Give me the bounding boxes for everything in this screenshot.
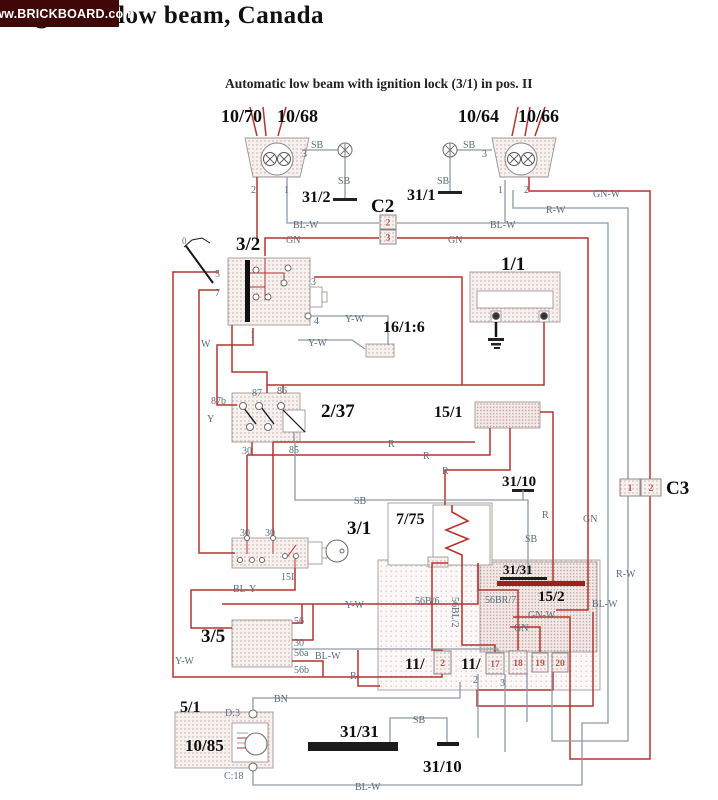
wire-label: 3: [482, 149, 487, 160]
wire-label: R-W: [616, 569, 636, 580]
connector-pin-number: 2: [386, 219, 391, 229]
wire-label: BN: [274, 694, 288, 705]
fusebox-15-2: [480, 562, 597, 652]
wire-label: GN: [448, 235, 462, 246]
component-label: 11/: [461, 656, 481, 673]
wire-label: Y-W: [308, 338, 327, 349]
wire-label: 30: [242, 446, 252, 457]
wire-label: GN: [514, 623, 528, 634]
connector-pin-number: 3: [386, 234, 391, 244]
component-label: 1/1: [501, 254, 525, 275]
component-label: 10/85: [185, 736, 224, 755]
wire-label: R: [388, 439, 395, 450]
wire-label: SB: [525, 534, 538, 545]
wire-label: 56a: [294, 648, 309, 659]
ground-bar: [491, 343, 501, 346]
tab-3-2-pin: [322, 292, 327, 302]
component-label: 10/70: [221, 106, 262, 126]
component-label: 10/66: [518, 106, 559, 126]
terminal-dot: [249, 763, 257, 771]
wire: [265, 238, 379, 256]
wire-label: 56BL/2: [449, 597, 460, 628]
wire-label: R: [542, 510, 549, 521]
wire-label: 15I: [281, 572, 294, 583]
wire-label: W: [201, 339, 211, 350]
ground-bar: [245, 260, 250, 322]
wire: [191, 568, 295, 628]
wire-label: R: [350, 671, 357, 682]
wire-label: 7: [215, 288, 220, 299]
wire-label: 85: [289, 445, 299, 456]
wire-label: GN-W: [528, 610, 556, 621]
component-label: 31/10: [423, 757, 462, 776]
wire: [263, 107, 266, 136]
component-label: 31/10: [502, 474, 536, 490]
ignition-3-1: [232, 538, 308, 568]
ground-bar: [488, 338, 504, 341]
wire-label: SB: [437, 176, 450, 187]
component-label: 3/2: [236, 234, 260, 255]
wire-label: Y-W: [345, 600, 364, 611]
wiring-diagram: 231221718192010/7010/6810/6410/6631/231/…: [0, 0, 718, 800]
component-label: C2: [371, 196, 394, 217]
terminal-dot: [541, 313, 548, 320]
component-label: 5/1: [180, 699, 200, 716]
wire-label: 56BR/7: [485, 595, 516, 606]
wire-label: 56b: [294, 665, 309, 676]
terminal-dot: [285, 265, 291, 271]
wire-label: 56: [294, 616, 304, 627]
connector-pin-number: 2: [649, 484, 654, 494]
terminal-dot: [249, 710, 257, 718]
component-label: 31/2: [302, 189, 330, 206]
wire-label: BL-W: [315, 651, 341, 662]
wire-label: R: [423, 451, 430, 462]
terminal-dot: [283, 554, 288, 559]
terminal-dot: [250, 558, 255, 563]
switch-3-2: [228, 258, 310, 325]
wire-label: BL-W: [490, 220, 516, 231]
wire-label: 86: [277, 386, 287, 397]
wire-label: GN: [583, 514, 597, 525]
wiring-diagram-page: High and low beam, Canada www.BRICKBOARD…: [0, 0, 718, 800]
component-label: 11/: [405, 656, 425, 673]
dimmer-3-5: [232, 620, 292, 667]
wire-label: SB: [413, 715, 426, 726]
wire-label: SB: [354, 496, 367, 507]
wire-label: 87: [252, 388, 262, 399]
terminal-dot: [240, 403, 247, 410]
battery-slot: [477, 291, 553, 308]
component-label: 2/37: [321, 401, 355, 422]
wire-label: R-W: [546, 205, 566, 216]
ground-bar: [497, 581, 585, 586]
terminal-dot: [247, 424, 254, 431]
wire: [199, 290, 235, 553]
component-label: 10/64: [458, 106, 499, 126]
component-label: C3: [666, 478, 689, 499]
component-label: 7/75: [396, 511, 424, 528]
wire-label: 30: [240, 528, 250, 539]
wire-label: 0: [182, 236, 187, 246]
terminal-dot: [294, 554, 299, 559]
wire-label: BL-Y: [233, 584, 256, 595]
connector-pin-number: 2: [440, 659, 445, 669]
terminal-dot: [340, 549, 344, 553]
wire-label: 1: [498, 185, 503, 196]
wire-label: Y-W: [175, 656, 194, 667]
wire-label: D:3: [225, 708, 240, 719]
connector-pin-number: 18: [513, 659, 523, 669]
wire-label: 2: [473, 675, 478, 686]
wire-label: Y-W: [345, 314, 364, 325]
component-label: 31/31: [503, 562, 533, 577]
wire-label: 1: [250, 330, 255, 341]
wire-label: 1: [284, 185, 289, 196]
wire-label: BL-W: [293, 220, 319, 231]
wiring-diagram-svg: 231221718192010/7010/6810/6410/6631/231/…: [0, 0, 718, 800]
wire-label: 3: [500, 678, 505, 689]
terminal-dot: [253, 294, 259, 300]
tab-3-1: [308, 542, 322, 564]
terminal-dot: [260, 558, 265, 563]
wire-label: SB: [463, 140, 476, 151]
wire-label: 2: [251, 185, 256, 196]
ground-bar: [500, 577, 547, 580]
component-label: 15/2: [538, 589, 565, 605]
wire-label: 30: [265, 528, 275, 539]
terminal-dot: [305, 313, 311, 319]
component-label: 15/1: [434, 404, 462, 421]
wire-label: 4: [314, 316, 319, 327]
terminal-dot: [265, 424, 272, 431]
connector-pin-number: 17: [490, 660, 500, 670]
connector-pin-number: 1: [628, 484, 633, 494]
component-label: 31/31: [340, 722, 379, 741]
wire-label: 5: [215, 269, 220, 280]
terminal-dot: [253, 267, 259, 273]
wire-label: 3: [302, 149, 307, 160]
terminal-dot: [278, 403, 285, 410]
connector-16-1-6: [366, 344, 394, 357]
wire-label: 2: [524, 185, 529, 196]
wire-label: 87b: [211, 396, 226, 407]
component-label: 3/5: [201, 626, 225, 647]
connector-pin-number: 20: [555, 659, 565, 669]
ground-bar: [494, 347, 500, 349]
terminal-dot: [281, 280, 287, 286]
terminal-dot: [238, 558, 243, 563]
connector-pin-number: 19: [535, 659, 545, 669]
wire-label: GN: [286, 235, 300, 246]
wire-label: GN-W: [593, 189, 621, 200]
ground-bar: [333, 198, 357, 201]
component-label: 31/1: [407, 187, 435, 204]
terminal-dot: [256, 403, 263, 410]
component-label: 16/1:6: [383, 319, 425, 336]
ground-bar: [437, 742, 459, 746]
wire-label: SB: [311, 140, 324, 151]
terminal-dot: [326, 540, 348, 562]
ground-bar: [308, 742, 398, 751]
wire: [186, 246, 213, 283]
wire-label: R: [442, 466, 449, 477]
terminal-dot: [245, 733, 267, 755]
terminal-dot: [265, 294, 271, 300]
wire-label: Y: [207, 414, 214, 425]
module-7-75-plug: [428, 557, 448, 567]
wire-label: BL-W: [355, 782, 381, 793]
wire: [358, 650, 380, 686]
wire-label: C:18: [224, 771, 243, 782]
wire: [184, 238, 210, 247]
wire-label: SB: [338, 176, 351, 187]
wire-label: 3: [311, 277, 316, 288]
wire-label: 56B/6: [415, 596, 439, 607]
wire: [445, 428, 510, 505]
wire-label: BL-W: [592, 599, 618, 610]
fuse-15-1: [475, 402, 540, 428]
tab-3-2: [310, 287, 322, 307]
component-label: 10/68: [277, 106, 318, 126]
terminal-dot: [493, 313, 500, 320]
ground-bar: [438, 191, 462, 194]
wire: [540, 412, 553, 581]
component-label: 3/1: [347, 518, 371, 539]
